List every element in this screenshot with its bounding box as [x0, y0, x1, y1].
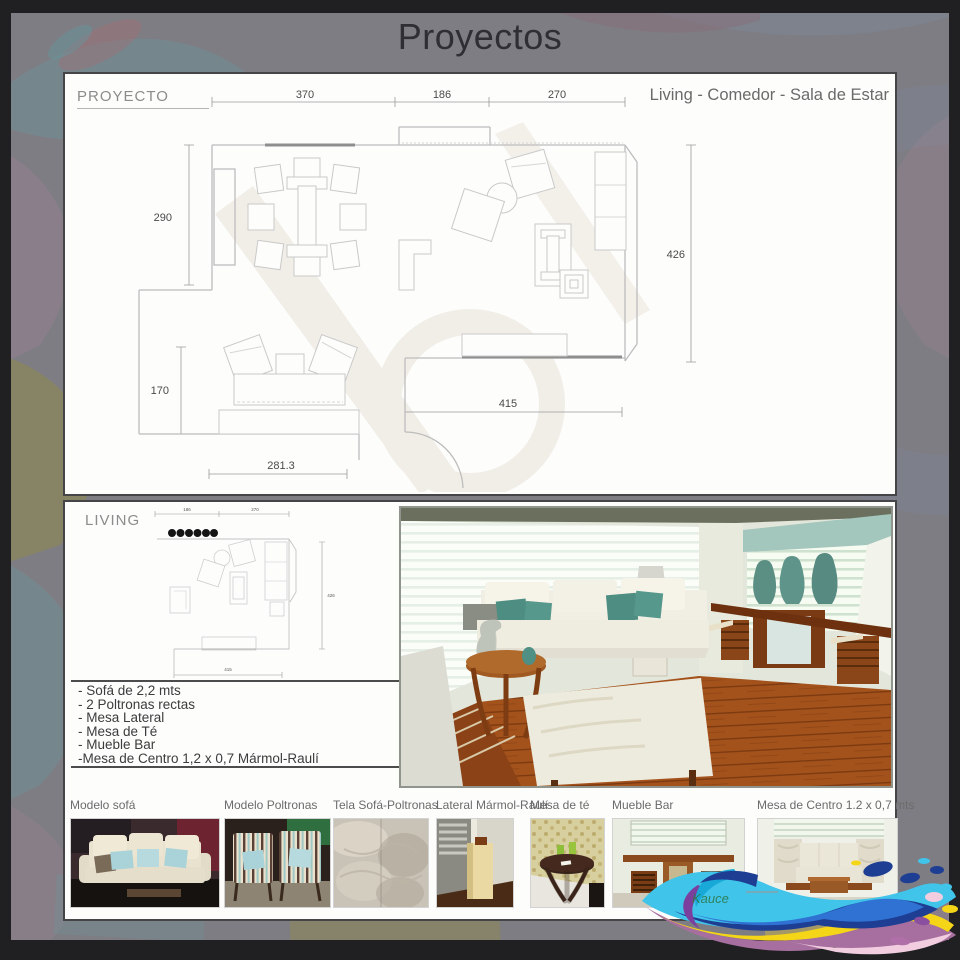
thumb-tela: Tela Sofá-Poltronas [333, 798, 427, 908]
living-mini-plan: 186 270 426 415 [65, 502, 405, 682]
thumb-label: Modelo Poltronas [224, 798, 329, 818]
mini-dim-186: 186 [183, 507, 191, 512]
dining-set [248, 158, 366, 276]
thumb-mesa-de-te-image [530, 818, 605, 908]
thumb-modelo-sofa: Modelo sofá [70, 798, 218, 908]
page-title: Proyectos [0, 16, 960, 58]
sofa-group [219, 335, 359, 434]
thumb-lateral-image [436, 818, 514, 908]
thumb-modelo-poltronas-image [224, 818, 331, 908]
thumb-label: Modelo sofá [70, 798, 218, 818]
dim-426: 426 [667, 249, 685, 261]
mini-furniture [170, 540, 287, 650]
list-item-mesa-centro: -Mesa de Centro 1,2 x 0,7 Mármol-Raulí [78, 752, 319, 766]
panel-proyecto: PROYECTO Living - Comedor - Sala de Esta… [63, 72, 897, 496]
mini-dim-270: 270 [251, 507, 259, 512]
list-item-mesa-te: - Mesa de Té [78, 725, 319, 739]
thumb-label: Mesa de Centro 1.2 x 0,7 mts [757, 798, 896, 818]
dim-270: 270 [548, 89, 566, 101]
floor-plan-drawing: 370 186 270 290 170 426 415 281.3 [65, 74, 895, 492]
thumb-modelo-poltronas: Modelo Poltronas [224, 798, 329, 908]
mini-dim-415: 415 [224, 667, 232, 672]
mini-dim-426: 426 [327, 593, 335, 598]
thumb-mesa-de-te: Mesa de té [530, 798, 603, 908]
dim-415: 415 [499, 398, 517, 410]
logo-fine-print [746, 891, 778, 893]
dim-290: 290 [154, 212, 172, 224]
sofa [463, 578, 709, 658]
dim-281: 281.3 [267, 460, 295, 472]
list-item-mueble-bar: - Mueble Bar [78, 738, 319, 752]
living-3d-render [399, 506, 893, 788]
render-scene [401, 508, 891, 786]
stool-dots [168, 529, 218, 537]
thumb-label: Mesa de té [530, 798, 603, 818]
list-item-mesa-lateral: - Mesa Lateral [78, 711, 319, 725]
list-item-poltronas: - 2 Poltronas rectas [78, 698, 319, 712]
thumb-label: Mueble Bar [612, 798, 743, 818]
list-rule-top [71, 680, 399, 682]
list-rule-bottom [71, 766, 399, 768]
studio-logo-splash: Kauce [638, 845, 960, 960]
thumb-lateral: Lateral Mármol-Raulí [436, 798, 512, 908]
presentation-board: Proyectos PROYECTO Living - Comedor - Sa… [0, 0, 960, 960]
list-item-sofa: - Sofá de 2,2 mts [78, 684, 319, 698]
dim-170: 170 [151, 385, 169, 397]
thumb-tela-image [333, 818, 429, 908]
foreground-armchair [523, 678, 713, 786]
dim-186: 186 [433, 89, 451, 101]
logo-text: Kauce [692, 891, 729, 906]
thumb-modelo-sofa-image [70, 818, 220, 908]
thumb-label: Tela Sofá-Poltronas [333, 798, 427, 818]
dim-370: 370 [296, 89, 314, 101]
thumb-label: Lateral Mármol-Raulí [436, 798, 512, 818]
